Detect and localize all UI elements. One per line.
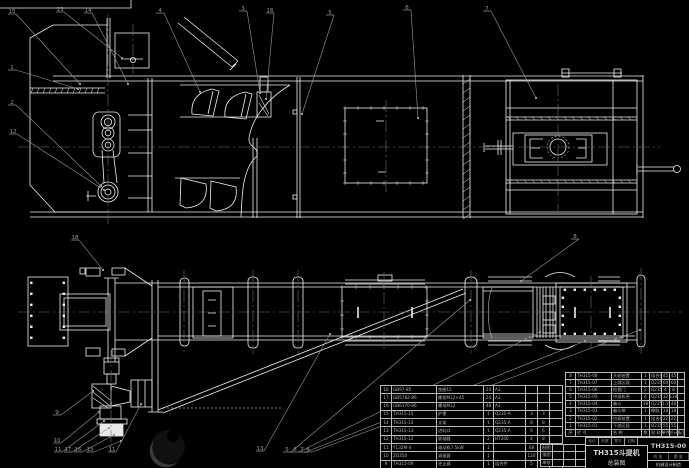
bom-cell [526, 386, 537, 393]
bom-cell [526, 394, 537, 401]
balloon-number: 9 [55, 410, 59, 416]
bom-cell: 22 [670, 416, 677, 422]
balloon-number: 3 [241, 6, 245, 12]
bom-cell: 支架 [437, 419, 483, 426]
leader-dot [100, 185, 102, 187]
bom-item-no: 11 [381, 444, 391, 451]
balloon-number: 8 [573, 234, 577, 240]
bom-cell: 数 [642, 430, 649, 436]
bom-cell: 55 [662, 423, 669, 429]
bom-cell: 1 [484, 419, 493, 426]
leader-dot [199, 91, 201, 93]
bom-item-no: 13 [381, 427, 391, 434]
bom-cell: 电动机7.5kW [437, 444, 483, 451]
bom-cell: 3 [526, 411, 537, 418]
bom-cell: 60 [670, 380, 677, 386]
bom-cell: 18 [662, 408, 669, 414]
balloon-number: 17 [65, 447, 72, 453]
bom-cell: 32 [662, 394, 669, 400]
bom-cell [494, 444, 525, 451]
bom-cell [550, 403, 562, 410]
bom-cell [538, 403, 549, 410]
bom-cell: 材 料 [650, 430, 661, 436]
bom-cell: 1 [642, 373, 649, 379]
revision-strip-cell: 标记 [586, 438, 598, 445]
bom-cell: 护罩 [437, 411, 483, 418]
bom-cell [550, 411, 562, 418]
leader-line [79, 240, 103, 270]
bom-cell [526, 403, 537, 410]
balloon-number: 16 [75, 447, 82, 453]
revision-strip-cell: 签字 [612, 438, 624, 445]
bom-cell: TH315-08 [576, 373, 611, 379]
bom-cell [678, 416, 684, 422]
bom-cell: 进料口 [437, 427, 483, 434]
bom-cell: 螺母M12 [437, 403, 483, 410]
bom-cell: 垫圈12 [437, 386, 483, 393]
bom-cell: TH315-14 [392, 419, 436, 426]
leader-dot [417, 117, 419, 119]
bom-cell [550, 436, 562, 443]
leader-dot [584, 340, 586, 342]
bom-table-right: 8TH315-08头轮装置1组合件45457TH315-07上部区段1Q235-… [565, 372, 685, 430]
bom-cell: 1 [484, 452, 493, 459]
bom-cell: 8 [670, 387, 677, 393]
bom-cell: 4 [526, 436, 537, 443]
bom-cell: GB97-85 [392, 386, 436, 393]
bom-table-left: 18GB97-85垫圈1224A317GB5782-86螺栓M12×4524A3… [380, 385, 563, 468]
bom-cell [678, 408, 684, 414]
bom-cell: 组合件 [494, 461, 525, 468]
bom-cell: TH315-15 [392, 411, 436, 418]
bom-cell: 48 [484, 403, 493, 410]
bom-cell: Q235-A [494, 419, 525, 426]
bom-cell [678, 401, 684, 407]
bom-cell: Q235-A [650, 394, 661, 400]
sheet-count: 共 张 [648, 453, 669, 460]
leader-dot [113, 434, 115, 436]
bom-cell: 8 [538, 436, 549, 443]
bom-cell: 总计 [670, 430, 677, 436]
bom-item-no: 7 [566, 380, 575, 386]
bom-cell: A3 [494, 403, 525, 410]
title-block: 标记处数签字日期 TH315斗提机 总装图 TH315-00 共 张 第 张 机… [585, 437, 689, 468]
leader-dot [520, 280, 522, 282]
bom-item-no: 9 [381, 461, 391, 468]
leader-dot [127, 83, 129, 85]
bom-cell: 畚斗 [612, 401, 641, 407]
bom-cell [678, 380, 684, 386]
balloon-number: 5 [285, 447, 289, 453]
bom-cell: 检视门 [612, 387, 641, 393]
bom-cell: 4 [662, 387, 669, 393]
balloon-number: 15 [87, 447, 94, 453]
bom-cell: 6 [526, 427, 537, 434]
leader-dot [639, 329, 641, 331]
drawing-number: TH315-00 [648, 439, 689, 452]
leader-dot [102, 269, 104, 271]
bom-cell: 1 [642, 380, 649, 386]
bom-cell: TH315-01 [576, 423, 611, 429]
bom-cell: TH315-04 [576, 401, 611, 407]
bom-cell: 60 [662, 380, 669, 386]
leader-line [61, 391, 93, 415]
bom-cell: 备注 [678, 430, 684, 436]
bom-cell [553, 445, 563, 451]
bom-cell: 3 [538, 411, 549, 418]
bom-cell: 畚斗带 [612, 408, 641, 414]
bom-cell: 8 [526, 419, 537, 426]
leader-line [491, 11, 536, 98]
bom-cell: 下部区段 [612, 423, 641, 429]
leader-line [16, 70, 78, 89]
leader-dot [140, 403, 142, 405]
bom-cell: 1 [642, 416, 649, 422]
watermark-logo [150, 430, 185, 467]
leader-dot [329, 333, 331, 335]
bom-cell: 1 [484, 461, 493, 468]
bom-cell: 22 [662, 416, 669, 422]
leader-dot [259, 92, 261, 94]
leader-line [164, 13, 200, 92]
bom-cell [553, 460, 563, 466]
balloon-number: 12 [10, 129, 17, 135]
bom-cell: TH315-12 [392, 436, 436, 443]
bom-item-no: 17 [381, 394, 391, 401]
upper-view [30, 17, 681, 219]
balloon-number: 14 [85, 8, 92, 14]
bom-cell: 68 [526, 444, 537, 451]
bom-cell: 38 [642, 401, 649, 407]
bom-cell: TH315-07 [576, 380, 611, 386]
bom-cell: 减速器 [437, 452, 483, 459]
leader-dot [469, 299, 471, 301]
bom-item-no: 5 [566, 394, 575, 400]
leader-dot [92, 390, 94, 392]
cad-drawing-sheet: 151314431656712121889101117161511135674 … [0, 0, 689, 468]
bom-cell: 逆止器 [437, 461, 483, 468]
bom-cell: 1 [642, 408, 649, 414]
balloon-number: 15 [9, 9, 16, 15]
bom-cell: 24 [484, 394, 493, 401]
bom-item-no: 描图 [541, 452, 552, 458]
bom-cell: 代 号 [576, 430, 611, 436]
bom-cell: 5 [526, 461, 537, 468]
balloon-number: 16 [267, 8, 274, 14]
sheet-index: 第 张 [669, 453, 689, 460]
bom-cell: 螺栓M12×45 [437, 394, 483, 401]
bom-item-no: 16 [381, 403, 391, 410]
bom-cell [494, 452, 525, 459]
bom-item-no: 序 [566, 430, 575, 436]
bom-cell: 单件 [662, 430, 669, 436]
title-block-revision-strip: 标记处数签字日期 [586, 438, 647, 445]
bom-cell [550, 419, 562, 426]
sheet-frame-corner [0, 0, 131, 8]
balloon-number: 18 [72, 235, 79, 241]
bom-cell: 头轮装置 [612, 373, 641, 379]
bom-cell: GB6170-86 [392, 403, 436, 410]
leader-dot [265, 98, 267, 100]
bom-item-no: 8 [566, 373, 575, 379]
bom-cell [678, 387, 684, 393]
bom-cell: 1.2 [662, 401, 669, 407]
balloon-number: 13 [57, 7, 64, 13]
bom-cell: 46 [670, 401, 677, 407]
bom-cell: 18 [670, 408, 677, 414]
leader-dot [121, 57, 123, 59]
balloon-number: 1 [10, 65, 14, 71]
bom-cell: 1 [642, 423, 649, 429]
bom-cell [564, 460, 575, 466]
bom-cell: TH315-05 [576, 394, 611, 400]
sheet-count-cells: 共 张 第 张 [648, 452, 689, 460]
bom-cell: 45 [662, 373, 669, 379]
balloon-number: 6 [293, 447, 297, 453]
bom-cell: Q235-A [650, 401, 661, 407]
balloon-number: 7 [485, 6, 489, 12]
signature-grid: 制图描图审核 [540, 444, 587, 467]
bom-cell [678, 423, 684, 429]
leader-dot [103, 420, 105, 422]
bom-cell: 拉紧装置 [612, 416, 641, 422]
bom-cell: 8 [538, 419, 549, 426]
bom-item-no: 4 [566, 401, 575, 407]
bom-cell: 上部区段 [612, 380, 641, 386]
bom-cell: 2 [484, 436, 493, 443]
bom-item-no: 10 [381, 452, 391, 459]
bom-cell: Q235-A [494, 411, 525, 418]
bom-cell: Q235-A [650, 423, 661, 429]
bom-cell: 4 [642, 394, 649, 400]
leader-dot [79, 83, 81, 85]
bom-cell: 组合件 [650, 416, 661, 422]
balloon-number: 4 [306, 447, 310, 453]
bom-header-row: 序代 号名 称数材 料单件总计备注 [565, 429, 685, 437]
balloon-number: 4 [158, 8, 162, 14]
bom-cell [553, 452, 563, 458]
leader-line [264, 334, 330, 451]
leader-line [16, 14, 80, 84]
bom-cell: Q235-A [650, 380, 661, 386]
balloon-number: 6 [405, 5, 409, 11]
bom-cell: TH315-13 [392, 427, 436, 434]
leader-line [266, 13, 274, 99]
bom-item-no: 14 [381, 419, 391, 426]
leader-dot [539, 331, 541, 333]
bom-cell: 6 [538, 427, 549, 434]
revision-strip-cell: 日期 [625, 438, 637, 445]
bom-cell: A3 [494, 394, 525, 401]
bom-cell: TH315-03 [576, 408, 611, 414]
bom-cell: Q235-A [494, 427, 525, 434]
leader-dot [98, 411, 100, 413]
bom-cell: 1 [484, 444, 493, 451]
bom-item-no: 1 [566, 423, 575, 429]
leader-line [16, 105, 101, 186]
leader-dot [108, 427, 110, 429]
bom-cell [564, 452, 575, 458]
sheet-name: 总装图 [607, 458, 625, 467]
bom-cell: 55 [670, 423, 677, 429]
bom-cell [550, 386, 562, 393]
bom-cell: TH315-02 [576, 416, 611, 422]
bom-cell [538, 386, 549, 393]
leader-line [411, 10, 418, 118]
bom-cell: 1 [484, 411, 493, 418]
bom-cell: 24 [484, 386, 493, 393]
balloon-number: 13 [257, 446, 264, 452]
bom-cell: 名 称 [612, 430, 641, 436]
drawing-title: TH315斗提机 总装图 [586, 445, 648, 468]
organization: 机械设计制造 [648, 460, 689, 468]
bom-cell [678, 373, 684, 379]
bom-cell: 1 [484, 427, 493, 434]
leader-dot [535, 97, 537, 99]
bom-item-no: 12 [381, 436, 391, 443]
bom-item-no: 2 [566, 416, 575, 422]
leader-dot [103, 189, 105, 191]
bom-item-no: 15 [381, 411, 391, 418]
leader-dot [77, 88, 79, 90]
balloon-number: 11 [55, 447, 62, 453]
bom-cell: 128 [670, 394, 677, 400]
revision-strip-cell: 处数 [599, 438, 611, 445]
bom-cell: Q235-A [650, 387, 661, 393]
bom-cell: 橡胶 [650, 408, 661, 414]
bom-item-no: 3 [566, 408, 575, 414]
bom-cell: ZQ350 [392, 452, 436, 459]
bom-cell [564, 445, 575, 451]
bom-item-no: 制图 [541, 445, 552, 451]
bom-cell: 组合件 [650, 373, 661, 379]
bom-cell: 中部机壳 [612, 394, 641, 400]
bom-cell: HT200 [494, 436, 525, 443]
bom-cell: 联轴器 [437, 436, 483, 443]
revision-strip-cell [638, 438, 647, 445]
bom-cell [550, 427, 562, 434]
leader-line [302, 15, 334, 114]
bom-cell: TH315-06 [576, 387, 611, 393]
leader-dot [301, 113, 303, 115]
balloon-number: 10 [54, 438, 61, 444]
bom-cell [538, 394, 549, 401]
bom-cell [678, 394, 684, 400]
balloon-number: 5 [328, 10, 332, 16]
bom-cell: A3 [494, 386, 525, 393]
bom-cell: Y132M-4 [392, 444, 436, 451]
bom-item-no: 6 [566, 387, 575, 393]
bom-cell: 120 [526, 452, 537, 459]
bom-cell: TH315-09 [392, 461, 436, 468]
bom-item-no: 18 [381, 386, 391, 393]
bom-cell: GB5782-86 [392, 394, 436, 401]
balloon-number: 2 [10, 100, 14, 106]
product-name: TH315斗提机 [593, 448, 639, 458]
balloon-number: 7 [300, 447, 304, 453]
balloon-number: 11 [109, 447, 116, 453]
bom-cell: 2 [642, 387, 649, 393]
bom-cell [550, 394, 562, 401]
leader-line [64, 12, 122, 58]
bom-item-no: 审核 [541, 460, 552, 466]
bom-cell: 45 [670, 373, 677, 379]
